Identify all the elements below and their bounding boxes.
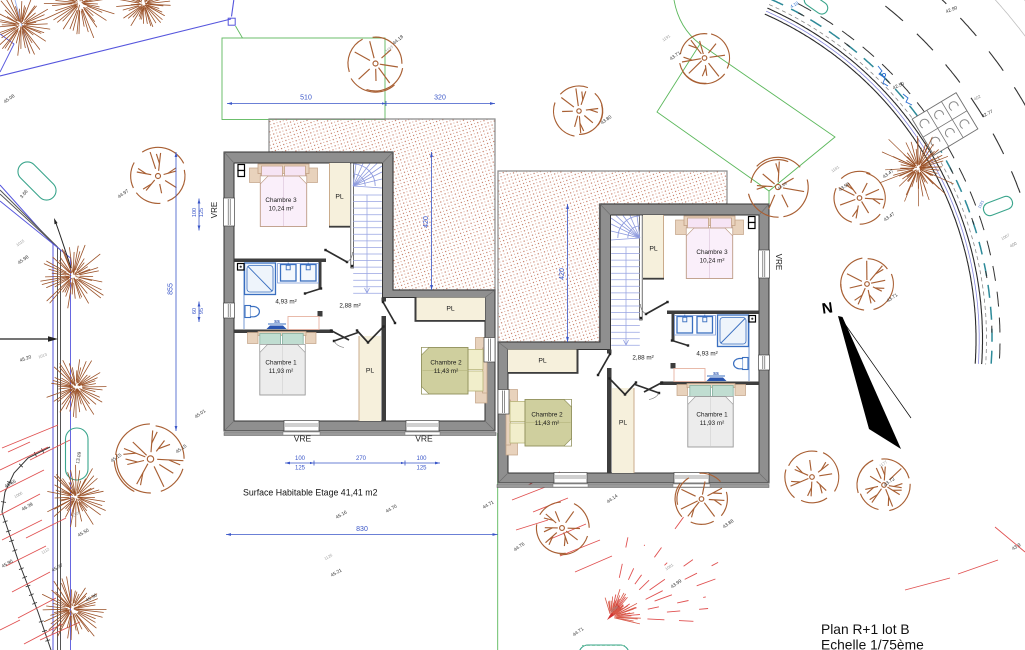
svg-text:Surface Habitable Etage 41,41: Surface Habitable Etage 41,41 m2 <box>243 488 378 498</box>
svg-text:VRE: VRE <box>415 434 433 444</box>
svg-text:10,24 m²: 10,24 m² <box>700 257 725 264</box>
svg-text:125: 125 <box>295 466 306 472</box>
svg-text:11,43 m²: 11,43 m² <box>535 420 559 427</box>
svg-text:Plan R+1 lot B: Plan R+1 lot B <box>821 622 910 637</box>
svg-text:11,43 m²: 11,43 m² <box>434 368 458 375</box>
svg-text:VRE: VRE <box>294 434 312 444</box>
svg-text:270: 270 <box>356 456 367 462</box>
svg-text:PL: PL <box>446 306 455 313</box>
svg-text:Chambre 3: Chambre 3 <box>265 197 297 204</box>
svg-text:PL: PL <box>366 368 375 375</box>
svg-text:Chambre 1: Chambre 1 <box>265 359 297 366</box>
svg-text:PL: PL <box>538 358 547 365</box>
svg-text:60: 60 <box>192 308 198 314</box>
svg-text:510: 510 <box>300 95 312 102</box>
svg-text:Chambre 2: Chambre 2 <box>531 411 563 418</box>
svg-text:Chambre 2: Chambre 2 <box>430 359 462 366</box>
svg-text:4,93 m²: 4,93 m² <box>275 299 296 306</box>
svg-text:420: 420 <box>559 268 566 280</box>
svg-text:VRE: VRE <box>774 254 783 270</box>
svg-text:PL: PL <box>649 246 658 253</box>
svg-text:100: 100 <box>192 208 198 217</box>
svg-text:2,88 m²: 2,88 m² <box>632 355 653 362</box>
svg-text:Echelle 1/75ème: Echelle 1/75ème <box>821 638 924 650</box>
svg-text:PL: PL <box>619 420 628 427</box>
svg-text:2,88 m²: 2,88 m² <box>339 303 360 310</box>
svg-text:ss: ss <box>274 319 280 325</box>
svg-text:11,93 m²: 11,93 m² <box>700 420 724 427</box>
svg-text:VRE: VRE <box>210 202 219 218</box>
svg-text:855: 855 <box>168 283 175 295</box>
svg-text:11,93 m²: 11,93 m² <box>269 368 293 375</box>
svg-text:830: 830 <box>356 526 368 533</box>
svg-text:420: 420 <box>423 216 430 228</box>
svg-text:10,24 m²: 10,24 m² <box>269 205 294 212</box>
svg-text:Chambre 3: Chambre 3 <box>696 249 728 256</box>
svg-text:95: 95 <box>199 308 205 314</box>
svg-text:125: 125 <box>416 466 427 472</box>
svg-text:100: 100 <box>416 456 427 462</box>
svg-text:125: 125 <box>199 208 205 217</box>
svg-text:320: 320 <box>434 95 446 102</box>
svg-text:4,93 m²: 4,93 m² <box>696 351 717 358</box>
svg-text:PL: PL <box>335 194 344 201</box>
svg-text:Chambre 1: Chambre 1 <box>696 411 728 418</box>
svg-text:100: 100 <box>295 456 306 462</box>
svg-text:ss: ss <box>713 371 719 377</box>
